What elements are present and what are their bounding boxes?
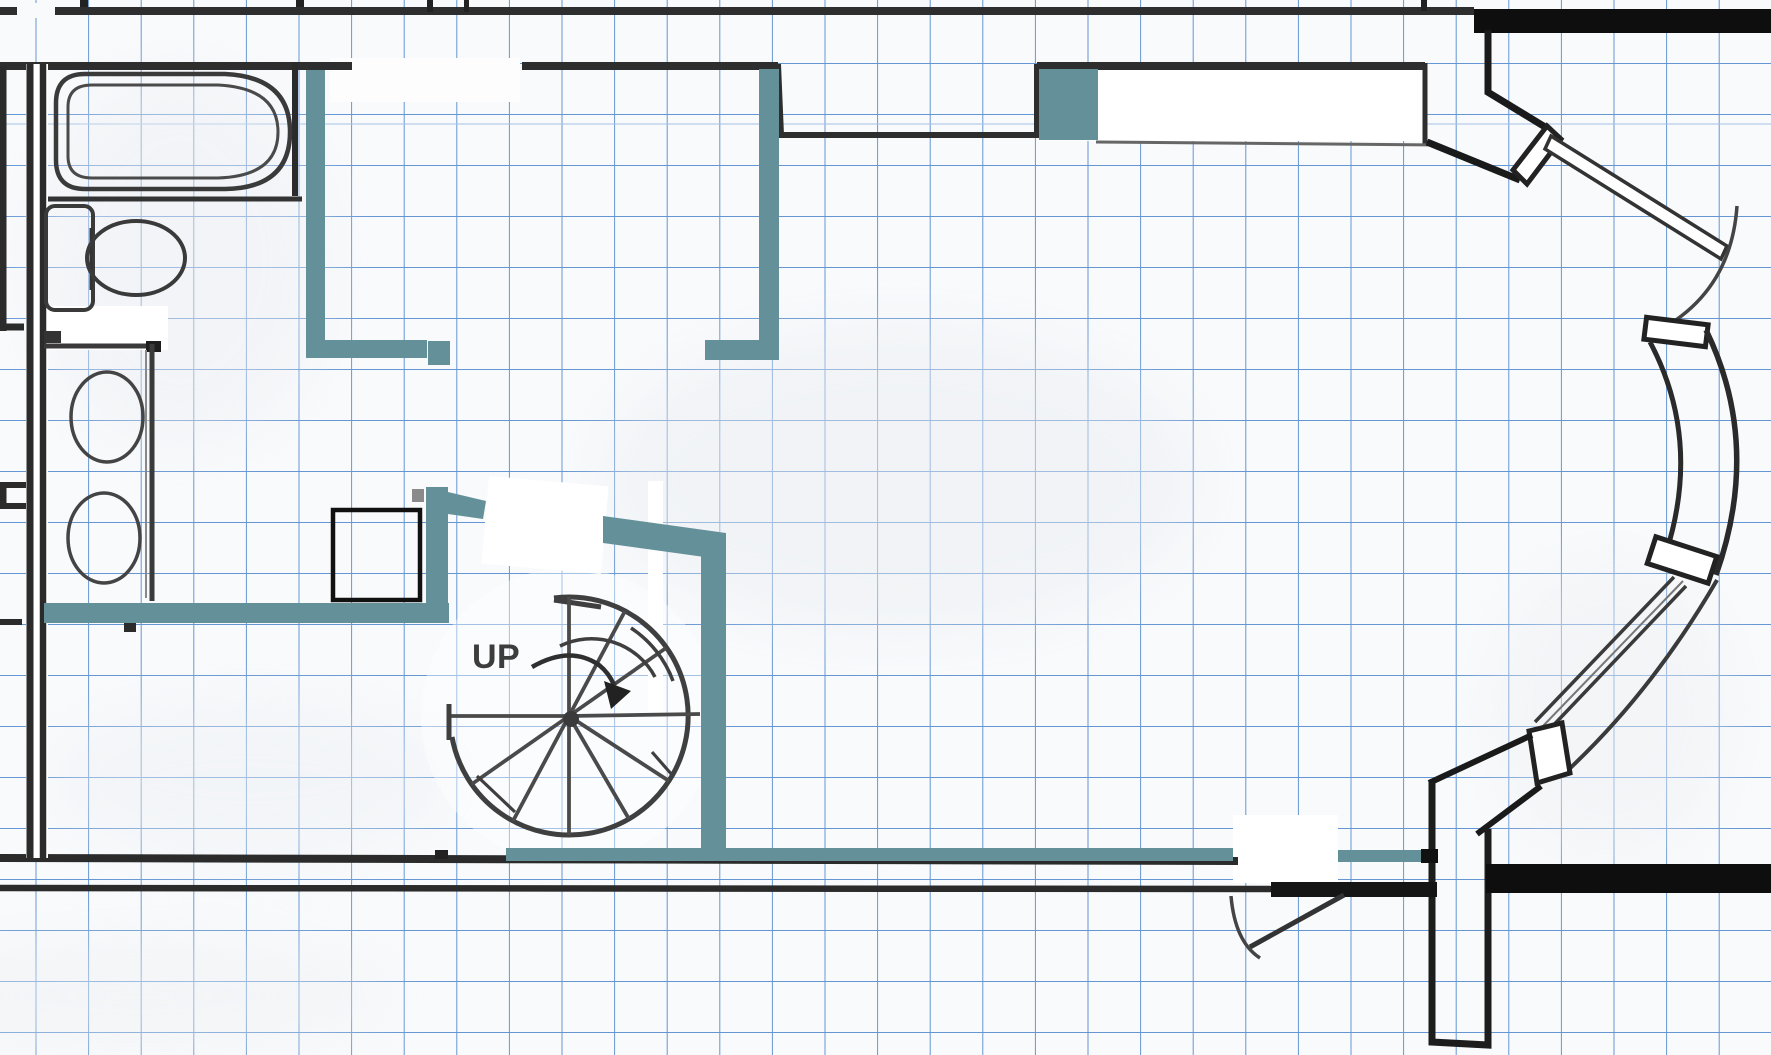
svg-text:UP: UP bbox=[472, 638, 520, 676]
